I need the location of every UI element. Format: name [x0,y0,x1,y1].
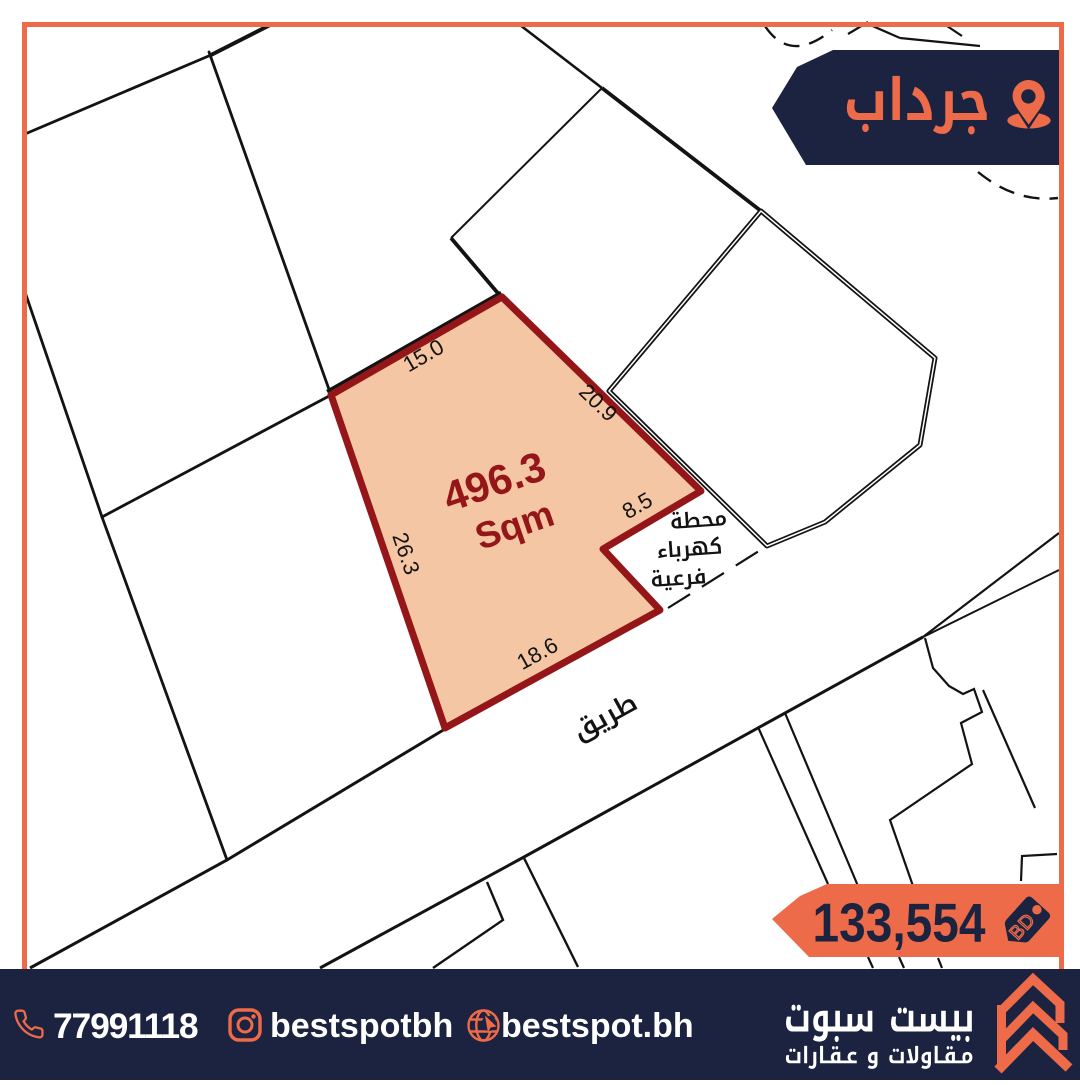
svg-text:bestspot.bh: bestspot.bh [501,1007,694,1045]
svg-text:bestspotbh: bestspotbh [270,1007,453,1045]
svg-text:133,554: 133,554 [813,891,986,953]
svg-text:77991118: 77991118 [53,1006,198,1046]
